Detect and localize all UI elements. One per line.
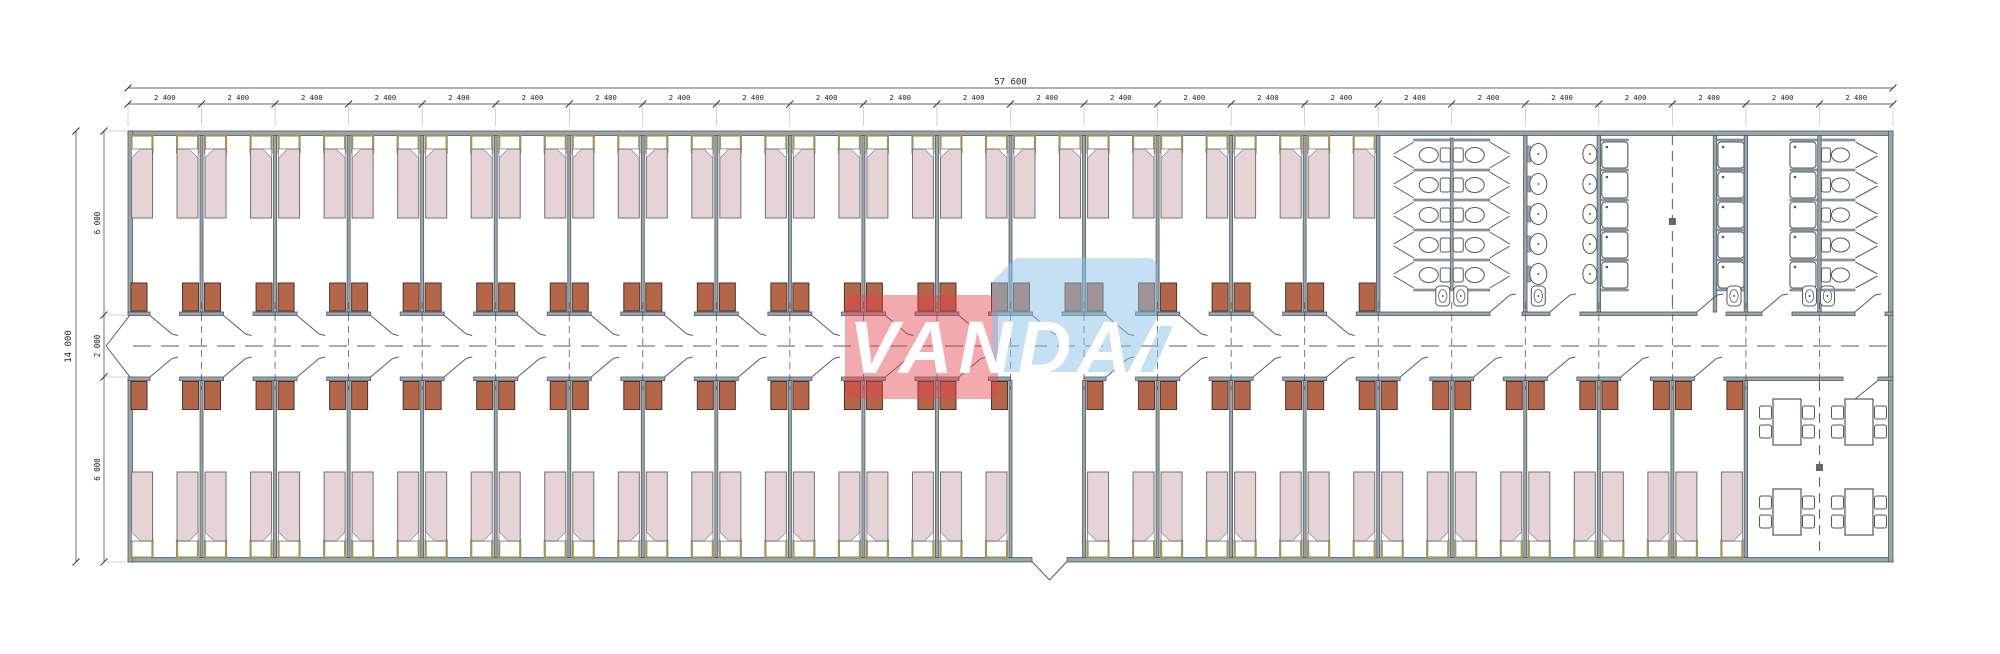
stall-door-leaf [1855,232,1877,244]
partition-wall [1303,136,1306,313]
bed-pillow [324,541,345,558]
door-leaf [834,334,840,336]
door-leaf [1400,359,1422,378]
door-leaf [613,357,619,359]
dim-label-height-segment: 2 000 [93,334,102,357]
bed [839,472,860,541]
shower-drain [1606,266,1609,269]
door-leaf [1510,294,1516,295]
dim-label-module: 2 400 [1036,93,1058,102]
bed [1308,149,1329,218]
bed-pillow [205,541,226,558]
sink-drain [1460,295,1462,297]
bed [426,149,447,218]
shower-tray [1602,232,1628,258]
door-leaf [371,316,393,335]
corridor-wall [1209,377,1231,381]
toilet-tank [1453,148,1463,162]
corridor-wall [1305,312,1327,316]
stall-door-leaf [1394,156,1414,168]
corridor-wall [349,377,371,381]
stall-door-leaf [1490,246,1510,258]
door-leaf [393,357,399,359]
corridor-wall [1577,377,1599,381]
door-leaf [812,316,834,335]
corridor-wall [1378,312,1490,316]
door-leaf [1716,357,1722,359]
wardrobe-cabinet [403,283,419,311]
wardrobe-cabinet [131,382,147,410]
stall-door-leaf [1394,232,1414,244]
toilet-bowl [1465,148,1484,163]
wardrobe-cabinet [719,283,735,311]
chair [1875,496,1887,509]
corridor-wall [202,312,224,316]
sanitary-wall [1524,136,1528,313]
wardrobe-cabinet [1161,382,1177,410]
chair [1875,515,1887,528]
stall-door-leaf [1855,246,1877,258]
wardrobe-cabinet [550,283,566,311]
door-leaf [1474,359,1496,378]
toilet-tank [1453,238,1463,252]
wardrobe-cabinet [1381,382,1397,410]
corridor-wall [422,312,444,316]
door-leaf [1032,562,1050,581]
wardrobe-cabinet [1286,283,1302,311]
bed-pillow [940,541,961,558]
partition-wall [1597,381,1600,558]
corridor-wall [1378,377,1400,381]
bed [251,149,272,218]
wardrobe-cabinet [330,382,346,410]
bed-pillow [646,541,667,558]
stall-partition [1600,199,1628,201]
partition-wall [862,136,865,313]
wardrobe-cabinet [1234,382,1250,410]
corridor-wall [1885,312,1893,316]
partition-wall [1524,381,1527,558]
corridor-wall [547,312,569,316]
bed [324,149,345,218]
toilet-tank [1440,238,1450,252]
door-leaf [591,359,613,378]
basin-drain [1537,273,1539,275]
partition-wall [274,381,277,558]
wardrobe-cabinet [352,382,368,410]
stall-door-leaf [1490,142,1510,154]
shower-tray [1790,262,1816,288]
stall-partition [1821,139,1855,141]
sink-drain [1733,295,1735,297]
wardrobe-cabinet [572,283,588,311]
dim-label-height-segment: 6 000 [93,458,102,481]
bed [1574,472,1595,541]
wardrobe-cabinet [1675,382,1691,410]
corridor-wall [1672,377,1694,381]
bed-pillow [1427,541,1448,558]
chair [1760,406,1772,419]
wardrobe-cabinet [1212,283,1228,311]
corridor-wall [1525,377,1547,381]
wardrobe-cabinet [403,382,419,410]
stall-partition [1414,229,1490,231]
bed [573,472,594,541]
bed [720,472,741,541]
corridor-wall [1650,377,1672,381]
wardrobe-cabinet [646,382,662,410]
door-leaf [540,334,546,336]
dim-label-module: 2 400 [1331,93,1353,102]
wardrobe-cabinet [1528,382,1544,410]
bed [839,149,860,218]
corridor-wall [1136,377,1158,381]
dim-label-module: 2 400 [1257,93,1279,102]
wardrobe-cabinet [183,283,199,311]
bed [398,149,419,218]
door-leaf [1327,359,1349,378]
wardrobe-cabinet [793,283,809,311]
bed-pillow [573,541,594,558]
toilet-tank [1453,208,1463,222]
bed [1427,472,1448,541]
door-leaf [224,316,246,335]
wardrobe-cabinet [646,283,662,311]
bed [398,472,419,541]
vanda-watermark: VANDA [845,258,1173,399]
dim-label-module: 2 400 [1110,93,1132,102]
chair [1832,406,1844,419]
wardrobe-cabinet [256,283,272,311]
shower-tray [1718,172,1744,198]
dining-wall [1744,381,1748,558]
bed-pillow [499,541,520,558]
bed-pillow [692,541,713,558]
bed [471,149,492,218]
bed-pillow [793,541,814,558]
corridor-wall [768,377,790,381]
corridor-wall [1746,377,1843,381]
bed [793,472,814,541]
corridor-wall [1726,312,1762,316]
floor-plan-sheet: Dormitory container building floor plan … [0,0,2000,654]
shower-drain [1606,206,1609,209]
stall-door-leaf [1855,156,1877,168]
corridor-wall [474,377,496,381]
bed-pillow [1602,541,1623,558]
corridor-wall [621,312,643,316]
wardrobe-cabinet [1161,283,1177,311]
shower-drain [1606,236,1609,239]
door-leaf [1643,357,1649,359]
shower-drain [1794,236,1797,239]
wardrobe-cabinet [771,382,787,410]
door-leaf [371,359,393,378]
wardrobe-cabinet [1308,382,1324,410]
chair [1803,496,1815,509]
shower-drain [1722,266,1725,269]
bed [1207,472,1228,541]
stall-door-leaf [1490,262,1510,274]
door-leaf [518,359,540,378]
stall-partition [1717,259,1745,261]
urinal-drain [1589,183,1591,185]
toilet-tank [1440,208,1450,222]
wardrobe-cabinet [425,283,441,311]
door-leaf [1349,334,1355,336]
bed [986,149,1007,218]
dining-table [1845,489,1873,535]
door-leaf [172,357,178,359]
bed-pillow [352,541,373,558]
bed-pillow [1574,541,1595,558]
stall-partition [1414,199,1490,201]
corridor-wall [275,312,297,316]
sink-drain [1808,295,1810,297]
shower-drain [1606,176,1609,179]
bed [1133,149,1154,218]
bed [499,149,520,218]
dim-label-module: 2 400 [595,93,617,102]
bed [1161,472,1182,541]
wardrobe-cabinet [1602,382,1618,410]
stall-partition [1790,229,1818,231]
toilet-tank [1821,148,1830,162]
partition-wall [568,136,571,313]
corridor-wall [1356,377,1378,381]
bed [912,472,933,541]
chair [1760,425,1772,438]
exterior-wall-bottom [1067,558,1893,563]
stall-door-leaf [1855,276,1877,288]
door-leaf [687,357,693,359]
toilet-bowl [1465,208,1484,223]
partition-wall [200,381,203,558]
door-leaf [760,334,766,336]
door-leaf [1202,334,1208,336]
sanitary-wall [1744,136,1748,313]
toilet-tank [1453,268,1463,282]
stall-partition [1790,139,1818,141]
partition-wall [1083,381,1086,558]
wardrobe-cabinet [1308,283,1324,311]
stall-partition [1414,139,1490,141]
door-leaf [1349,357,1355,359]
section-marker [1669,218,1676,225]
shower-tray [1602,202,1628,228]
shower-drain [1722,146,1725,149]
corridor-wall [349,312,371,316]
partition-wall [862,381,865,558]
partition-wall [788,381,791,558]
basin-drain [1537,183,1539,185]
corridor-wall [253,377,275,381]
shower-tray [1790,202,1816,228]
door-leaf [1490,295,1510,312]
shower-drain [1722,236,1725,239]
chair [1803,515,1815,528]
stall-door-leaf [1490,216,1510,228]
section-marker [1816,464,1823,471]
wardrobe-cabinet [1359,382,1375,410]
corridor-wall [128,312,150,316]
bed [618,472,639,541]
corridor-wall [1158,312,1180,316]
stall-door-leaf [1394,276,1414,288]
corridor-wall [327,312,349,316]
stall-partition [1821,229,1855,231]
wardrobe-cabinet [183,382,199,410]
stall-door-leaf [1490,156,1510,168]
door-leaf [444,359,466,378]
bed-pillow [618,541,639,558]
bed [1308,472,1329,541]
bed [793,149,814,218]
shower-drain [1794,176,1797,179]
stall-partition [1717,199,1745,201]
door-leaf [1496,357,1502,359]
urinal-drain [1589,243,1591,245]
stall-door-leaf [1855,262,1877,274]
floor-plan-drawing: Dormitory container building floor plan … [0,0,2000,654]
chair [1803,425,1815,438]
bed [545,472,566,541]
wardrobe-cabinet [719,382,735,410]
corridor-wall [1283,312,1305,316]
door-leaf [1422,357,1428,359]
partition-wall [421,381,424,558]
shower-tray [1602,262,1628,288]
stall-partition [1790,199,1818,201]
shower-drain [1794,206,1797,209]
stall-door-leaf [1394,216,1414,228]
partition-wall [715,136,718,313]
shower-tray [1790,232,1816,258]
door-leaf [1180,316,1202,335]
door-leaf [738,316,760,335]
stall-door-leaf [1855,186,1877,198]
door-leaf [466,357,472,359]
corridor-wall [569,312,591,316]
partition-wall [568,381,571,558]
dining-table [1773,399,1801,445]
stall-door-leaf [1490,172,1510,184]
wardrobe-cabinet [771,283,787,311]
dining-table [1845,399,1873,445]
corridor-wall [1283,377,1305,381]
partition-wall [274,136,277,313]
dim-label-module: 2 400 [669,93,691,102]
toilet-tank [1440,268,1450,282]
bed-pillow [545,541,566,558]
door-leaf [1855,295,1875,312]
bed-pillow [1529,541,1550,558]
corridor-wall [180,377,202,381]
toilet-bowl [1419,208,1438,223]
wardrobe-cabinet [624,382,640,410]
toilet-bowl [1831,208,1849,222]
corridor-wall [643,312,665,316]
corridor-wall [621,377,643,381]
dim-label-module: 2 400 [1184,93,1206,102]
corridor-wall [1878,377,1893,381]
dim-label-module: 2 400 [889,93,911,102]
bed-pillow [986,541,1007,558]
bed-pillow [1501,541,1522,558]
door-leaf [1875,294,1881,295]
bed [132,472,153,541]
corridor-wall [1209,312,1231,316]
wardrobe-cabinet [330,283,346,311]
dim-label-module: 2 400 [227,93,249,102]
chair [1832,515,1844,528]
watermark-text: VANDA [849,306,1137,389]
bed [1382,472,1403,541]
door-leaf [106,315,130,346]
stall-door-leaf [1855,142,1877,154]
stall-partition [1414,169,1490,171]
dim-label-module: 2 400 [1404,93,1426,102]
bed-pillow [912,541,933,558]
chair [1875,406,1887,419]
dim-label-height-segment: 6 000 [93,211,102,234]
corridor-wall [1158,377,1180,381]
stall-door-leaf [1394,172,1414,184]
bed [1207,149,1228,218]
dim-label-module: 2 400 [301,93,323,102]
wardrobe-cabinet [697,283,713,311]
bed [720,149,741,218]
bed [132,149,153,218]
bed [646,472,667,541]
stall-door-leaf [1855,216,1877,228]
corridor-wall [180,312,202,316]
bed-pillow [765,541,786,558]
corridor-wall [790,312,812,316]
door-leaf [150,316,172,335]
door-leaf [1327,316,1349,335]
shower-tray [1790,172,1816,198]
door-leaf [1855,381,1878,400]
door-leaf [172,334,178,336]
sink-drain [1537,295,1539,297]
stall-partition [1600,229,1628,231]
corridor-wall [716,312,738,316]
stall-partition [1717,139,1745,141]
bed [1280,472,1301,541]
door-leaf [393,334,399,336]
door-leaf [224,359,246,378]
door-leaf [760,357,766,359]
partition-wall [1009,381,1012,558]
bed-pillow [1648,541,1669,558]
shower-tray [1718,232,1744,258]
stall-partition [1790,259,1818,261]
dining-room [1760,381,1887,557]
wardrobe-cabinet [1727,382,1743,410]
door-leaf [1570,294,1576,295]
sanitary-block [1394,135,1878,311]
shower-tray [1718,142,1744,168]
sanitary-wall [1818,136,1822,313]
door-leaf [466,334,472,336]
bed [940,149,961,218]
corridor-wall [422,377,444,381]
stall-door-leaf [1394,202,1414,214]
door-leaf [665,316,687,335]
partition-wall [1303,381,1306,558]
dim-label-module: 2 400 [963,93,985,102]
